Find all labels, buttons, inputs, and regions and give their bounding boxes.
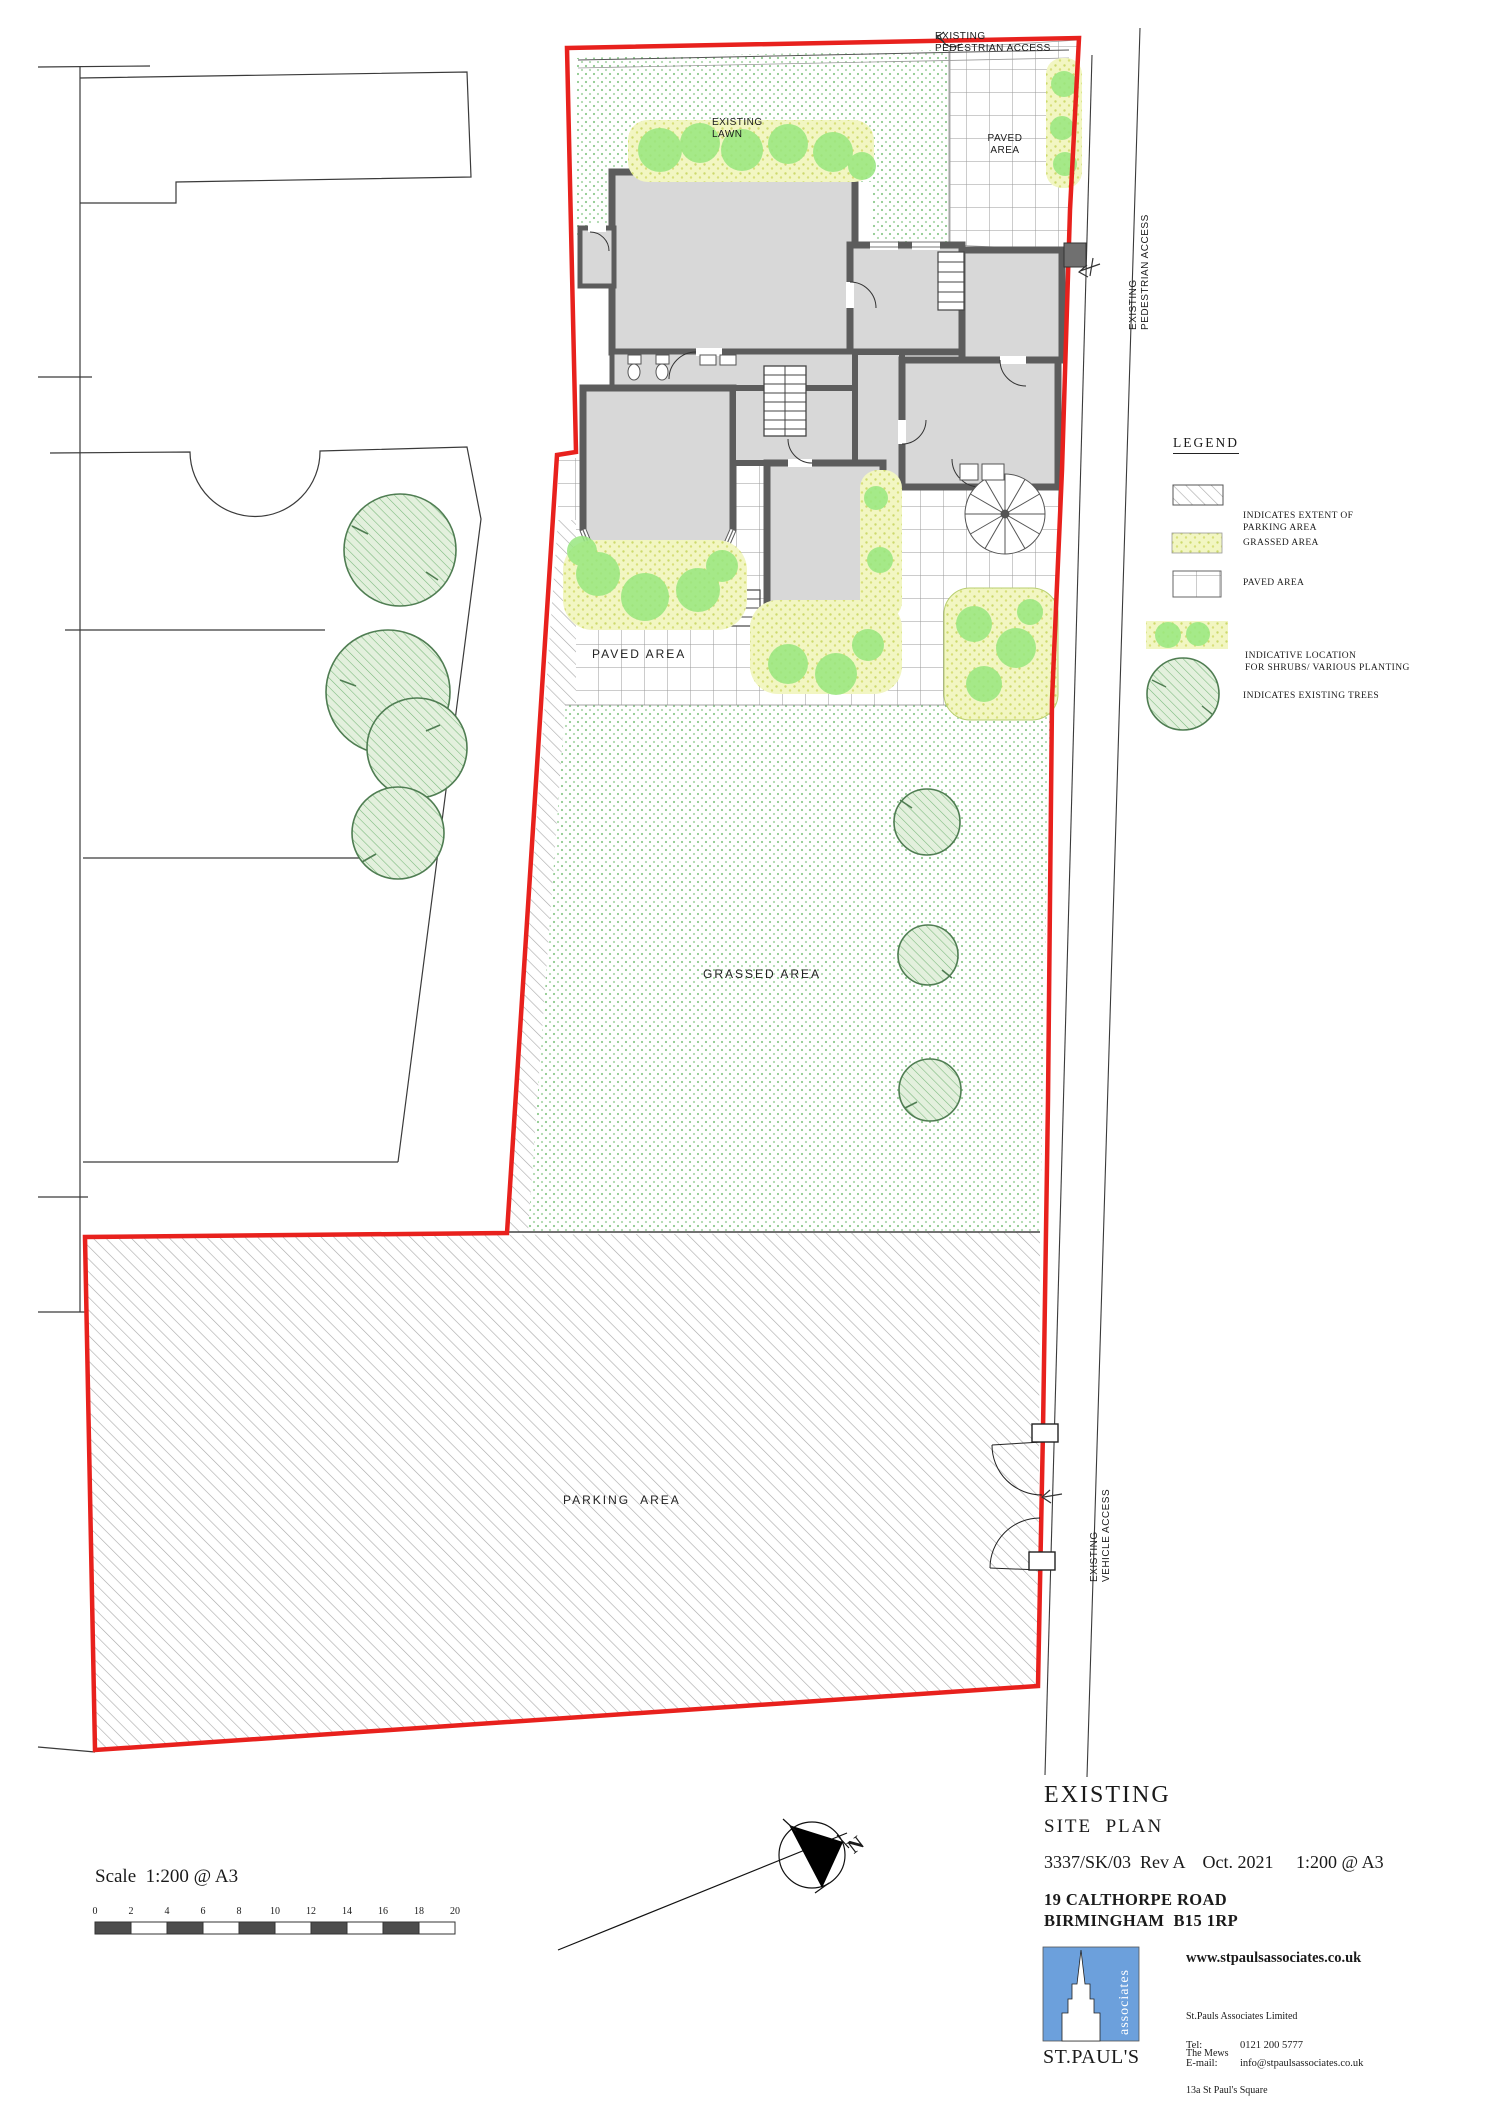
label-grassed-area: GRASSED AREA [703, 968, 821, 982]
parking-area [85, 1232, 1040, 1750]
logo-stpauls-text: ST.PAUL'S [1043, 2046, 1139, 2069]
spiral-stair [965, 474, 1045, 554]
scale-tick-0: 0 [84, 1906, 106, 1918]
legend-item-grassed: GRASSED AREA [1243, 537, 1319, 550]
drawing-title: EXISTING [1044, 1782, 1171, 1810]
company-email-value: info@stpaulsassociates.co.uk [1240, 2058, 1363, 2070]
logo-associates-text: associates [1117, 1969, 1133, 2035]
label-right-pedestrian-access: EXISTINGPEDESTRIAN ACCESS [1105, 214, 1163, 330]
drawing-subtitle: SITE PLAN [1044, 1816, 1163, 1838]
scale-bar [95, 1922, 455, 1934]
north-arrow [558, 1819, 849, 1950]
company-tel-value: 0121 200 5777 [1240, 2040, 1303, 2052]
company-tel-label: Tel: [1186, 2040, 1202, 2052]
label-paved-area-top: PAVEDAREA [975, 110, 1035, 168]
legend-title: LEGEND [1173, 435, 1239, 454]
legend-item-paved: PAVED AREA [1243, 577, 1304, 590]
site-plan-drawing [0, 0, 1497, 2117]
scale-tick-18: 18 [408, 1906, 430, 1918]
site-address-line2: BIRMINGHAM B15 1RP [1044, 1912, 1238, 1931]
label-parking-area: PARKING AREA [563, 1494, 681, 1508]
scale-tick-10: 10 [264, 1906, 286, 1918]
site-plan-sheet: EXISTINGPEDESTRIAN ACCESS EXISTINGLAWN P… [0, 0, 1497, 2117]
scale-label: Scale 1:200 @ A3 [95, 1866, 238, 1888]
legend-item-trees: INDICATES EXISTING TREES [1243, 690, 1379, 703]
label-paved-area-mid: PAVED AREA [592, 648, 686, 662]
label-vehicle-access: EXISTINGVEHICLE ACCESS [1066, 1489, 1124, 1582]
label-existing-lawn: EXISTINGLAWN [712, 94, 763, 152]
site-address-line1: 19 CALTHORPE ROAD [1044, 1891, 1227, 1910]
scale-tick-16: 16 [372, 1906, 394, 1918]
scale-tick-8: 8 [228, 1906, 250, 1918]
scale-tick-2: 2 [120, 1906, 142, 1918]
legend-swatches [1146, 485, 1228, 730]
scale-tick-6: 6 [192, 1906, 214, 1918]
scale-tick-12: 12 [300, 1906, 322, 1918]
scale-tick-20: 20 [444, 1906, 466, 1918]
label-top-pedestrian-access: EXISTINGPEDESTRIAN ACCESS [935, 8, 1051, 66]
legend-item-shrubs: INDICATIVE LOCATIONFOR SHRUBS/ VARIOUS P… [1245, 624, 1410, 688]
company-email-label: E-mail: [1186, 2058, 1218, 2070]
scale-tick-14: 14 [336, 1906, 358, 1918]
scale-tick-4: 4 [156, 1906, 178, 1918]
drawing-reference: 3337/SK/03 Rev A Oct. 2021 1:200 @ A3 [1044, 1852, 1384, 1873]
company-website: www.stpaulsassociates.co.uk [1186, 1950, 1361, 1967]
